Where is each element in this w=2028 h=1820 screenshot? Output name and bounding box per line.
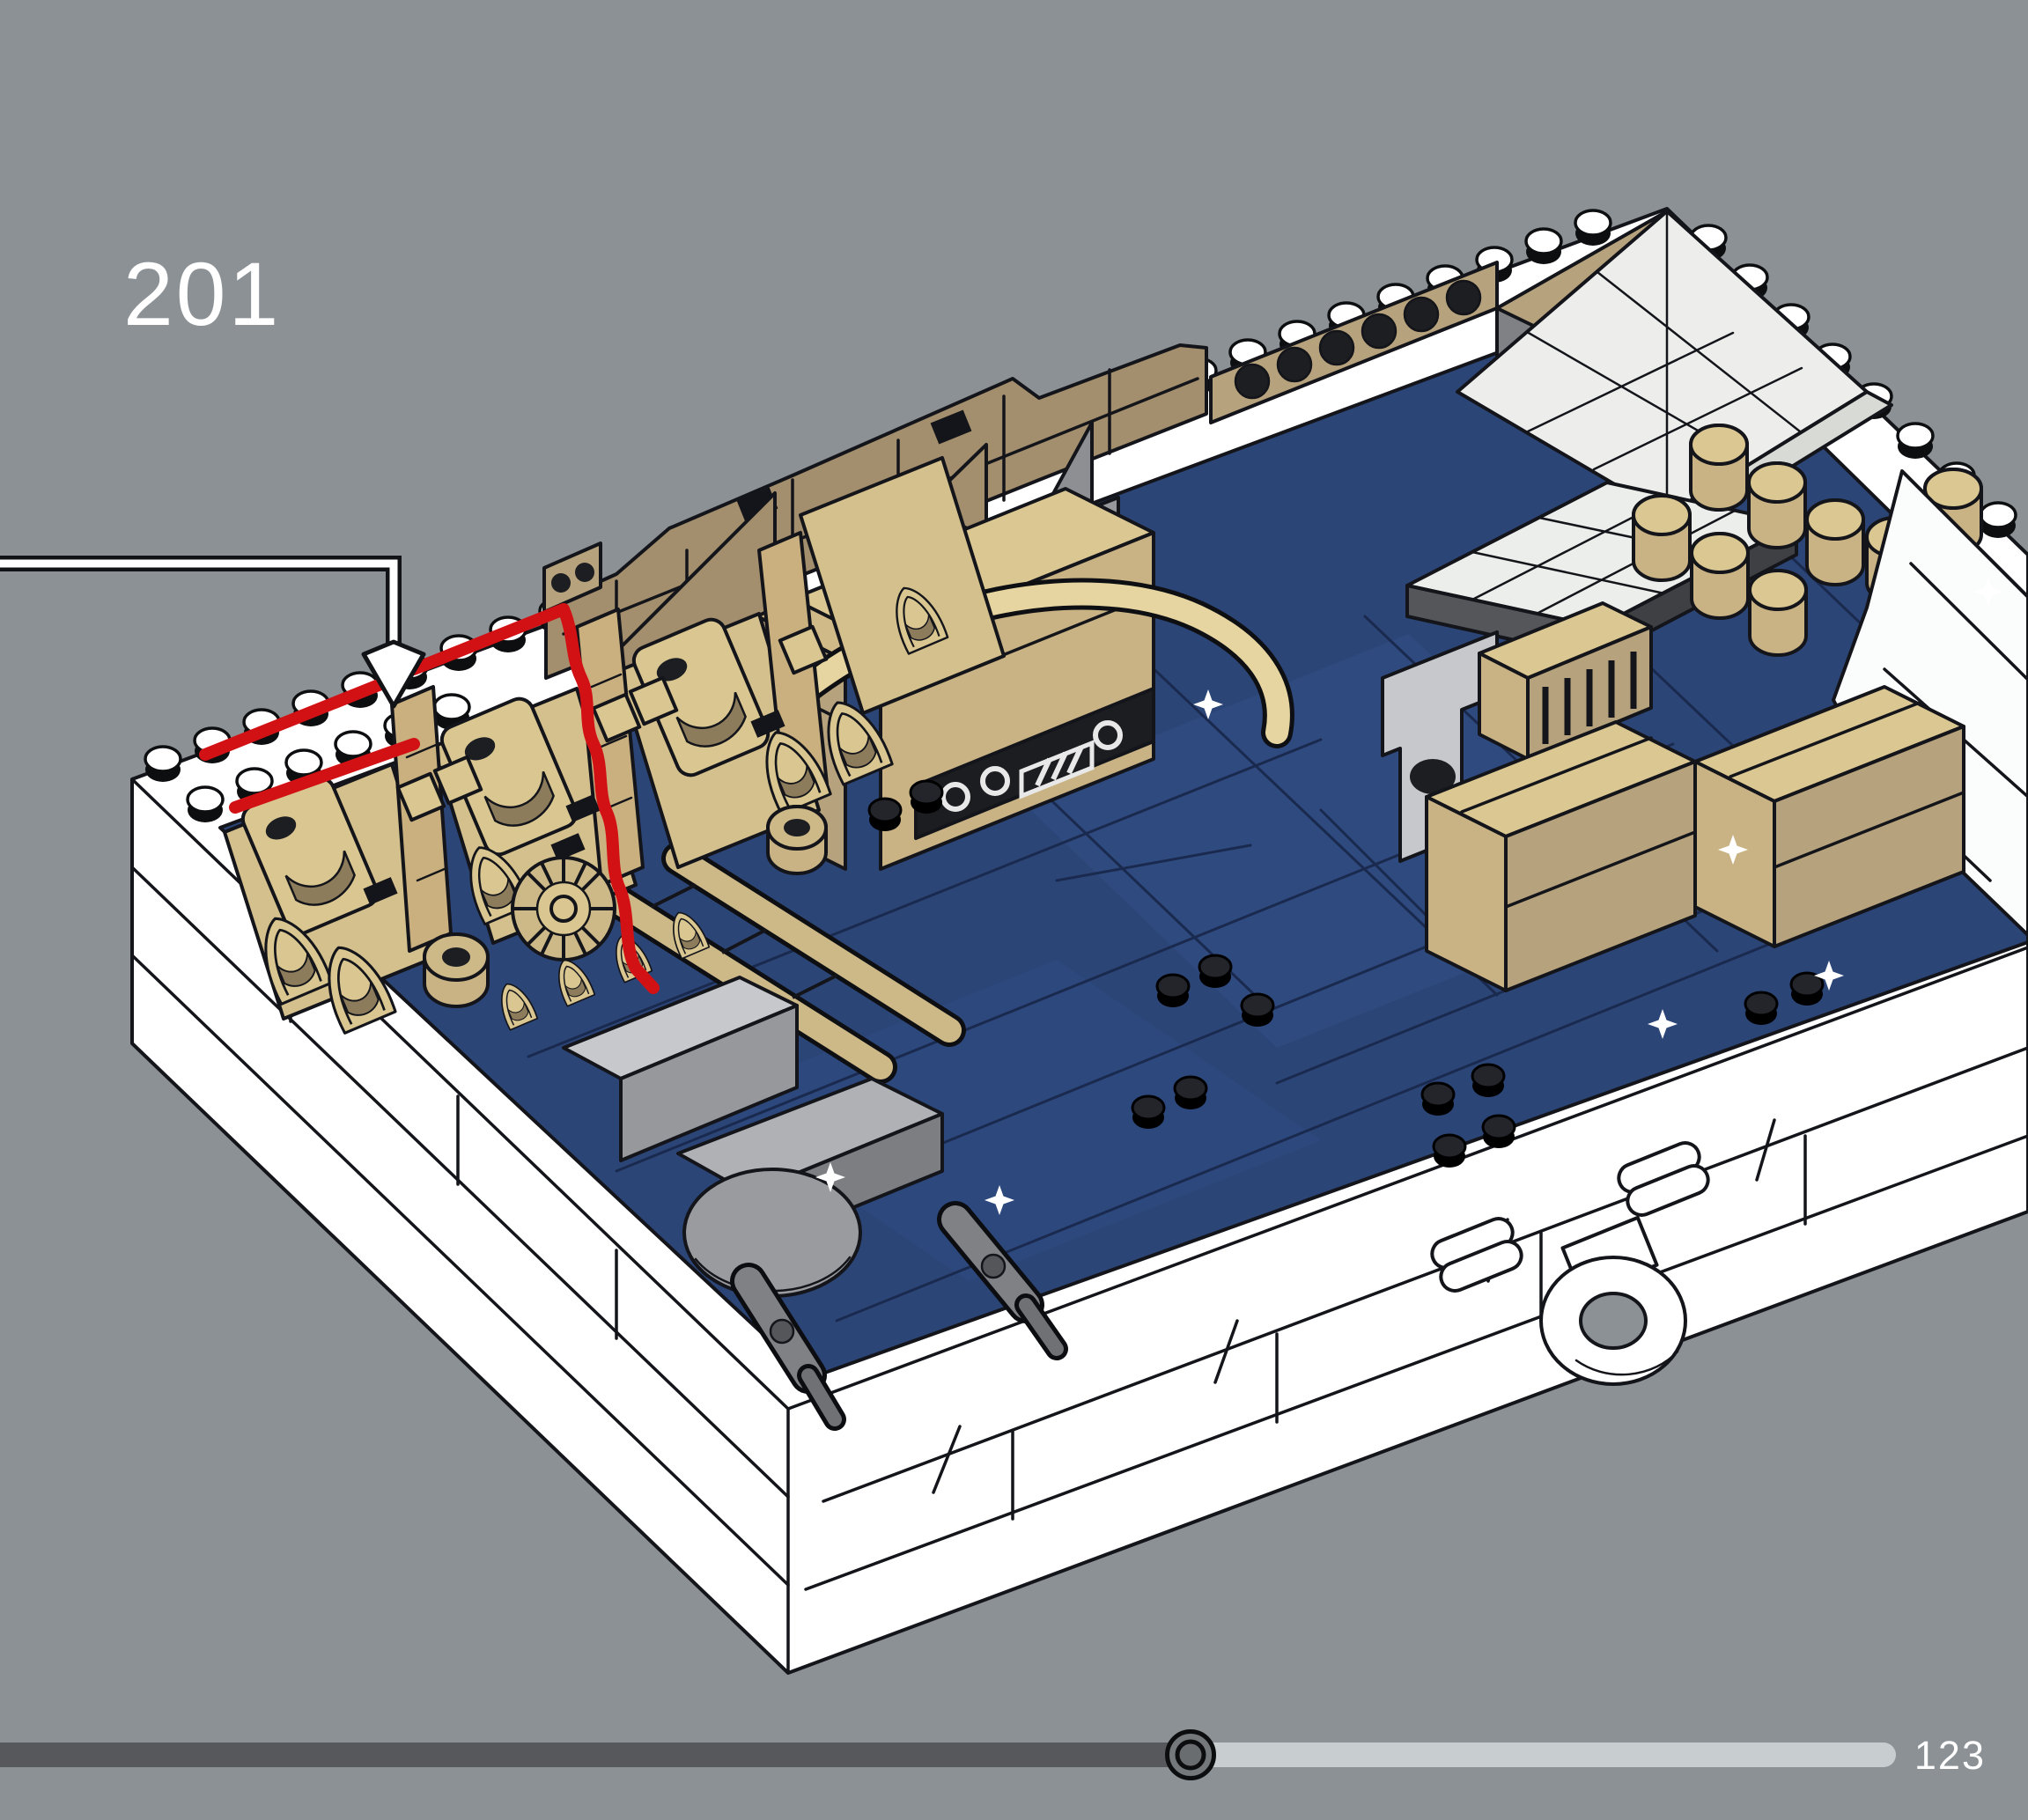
instruction-page: { "page": { "background_color": "#8b9195… [0, 0, 2028, 1820]
page-number: 123 [1914, 1733, 1986, 1779]
step-number: 201 [123, 243, 281, 346]
turbine-fan [513, 858, 615, 960]
ring-piece [768, 807, 826, 873]
progress-handle-inner-ring [1176, 1740, 1206, 1771]
progress-handle[interactable] [1165, 1729, 1216, 1780]
progress-bar[interactable] [0, 1743, 1896, 1767]
progress-fill [0, 1743, 1191, 1767]
ring-piece [424, 934, 488, 1006]
progress-track[interactable] [0, 1743, 1896, 1767]
build-illustration [0, 0, 2028, 1820]
